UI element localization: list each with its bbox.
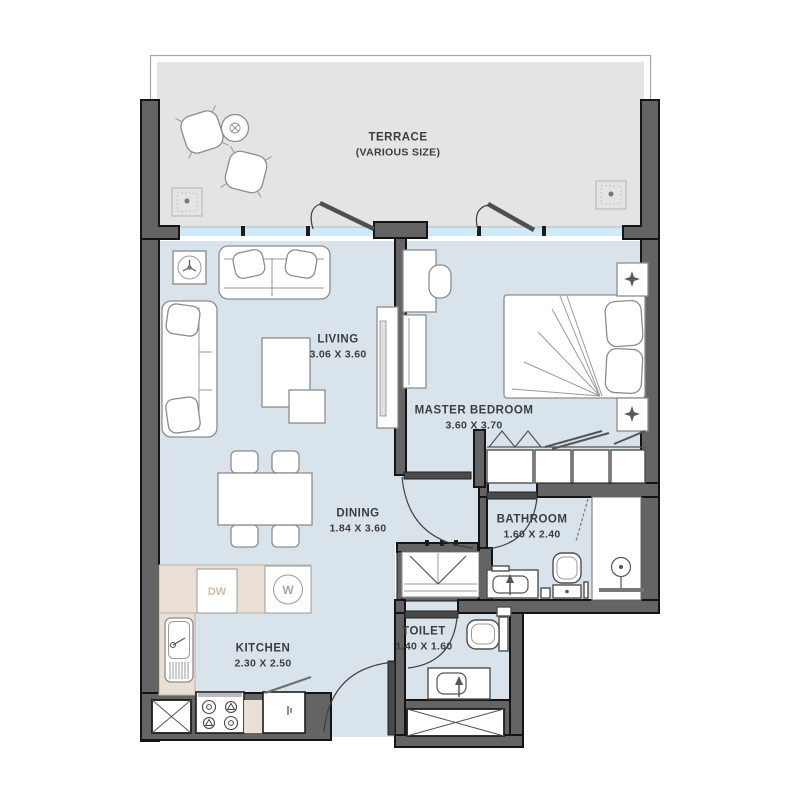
toilet-right-wall [510, 613, 523, 747]
kitchen-sink [165, 618, 193, 682]
room-name: DINING [336, 507, 379, 522]
toilet-top-wall [395, 600, 405, 613]
bathroom-left-wall [479, 497, 487, 548]
dining-chair [272, 525, 299, 547]
room-dims: 1.60 X 2.40 [503, 528, 560, 542]
hallway-floor [393, 473, 479, 543]
tv-console [377, 307, 398, 428]
toilet-vanity [428, 668, 490, 699]
stove [196, 692, 244, 733]
bathroom-bottom-wall [458, 600, 659, 613]
entry-floor [331, 693, 395, 737]
washing-machine: W [265, 566, 311, 613]
dining-table [218, 473, 312, 525]
dining-chair [231, 451, 258, 473]
center-window-pier [374, 222, 427, 238]
room-dims: (VARIOUS SIZE) [356, 146, 441, 160]
pillow [605, 348, 643, 394]
room-dims: 1.84 X 3.60 [329, 522, 386, 536]
side-table [289, 390, 325, 423]
pillow [605, 300, 644, 347]
room-label-kitchen: KITCHEN 2.30 X 2.50 [234, 642, 291, 671]
sofa [219, 246, 330, 299]
room-dims: 3.60 X 3.70 [445, 419, 502, 433]
room-name: TERRACE [368, 131, 427, 146]
terrace-table [222, 115, 249, 142]
hall-closet [402, 552, 479, 597]
room-name: KITCHEN [236, 642, 291, 657]
bathroom-vanity [487, 566, 538, 598]
room-name: TOILET [402, 625, 446, 640]
room-label-terrace: TERRACE (VARIOUS SIZE) [356, 131, 441, 160]
wardrobe-side-wall [474, 430, 485, 487]
room-name: BATHROOM [497, 513, 568, 528]
room-label-toilet: TOILET 1.40 X 1.60 [395, 625, 452, 654]
sofa [162, 301, 217, 437]
dishwasher: DW [197, 569, 237, 613]
floor-plan-drawing: DW W [0, 0, 800, 800]
washer-label: W [282, 583, 294, 597]
room-dims: 3.06 X 3.60 [309, 348, 366, 362]
closet-left-wall [397, 552, 402, 600]
room-name: MASTER BEDROOM [415, 404, 534, 419]
dishwasher-label: DW [208, 586, 227, 598]
dining-chair [272, 451, 299, 473]
window-mullion [306, 226, 310, 236]
dresser [403, 315, 426, 388]
room-label-living: LIVING 3.06 X 3.60 [309, 333, 366, 362]
plant-box [173, 251, 206, 284]
room-dims: 1.40 X 1.60 [395, 640, 452, 654]
nightstand [617, 398, 648, 431]
window-mullion [241, 226, 245, 236]
room-name: LIVING [317, 333, 358, 348]
window-mullion [542, 226, 546, 236]
desk-chair [429, 265, 451, 298]
floor-plan: DW W [0, 0, 800, 800]
room-label-dining: DINING 1.84 X 3.60 [329, 507, 386, 536]
bedroom-bathroom-wall [537, 483, 659, 497]
bed [504, 295, 645, 398]
shower-channel [599, 588, 644, 592]
counter-strip [244, 700, 263, 733]
room-label-bathroom: BATHROOM 1.60 X 2.40 [497, 513, 568, 542]
room-label-master-bedroom: MASTER BEDROOM 3.60 X 3.70 [415, 404, 534, 433]
closet-hook [425, 540, 429, 546]
dining-chair [231, 525, 258, 547]
left-wall [141, 239, 159, 741]
room-dims: 2.30 X 2.50 [234, 657, 291, 671]
nightstand [617, 263, 648, 296]
